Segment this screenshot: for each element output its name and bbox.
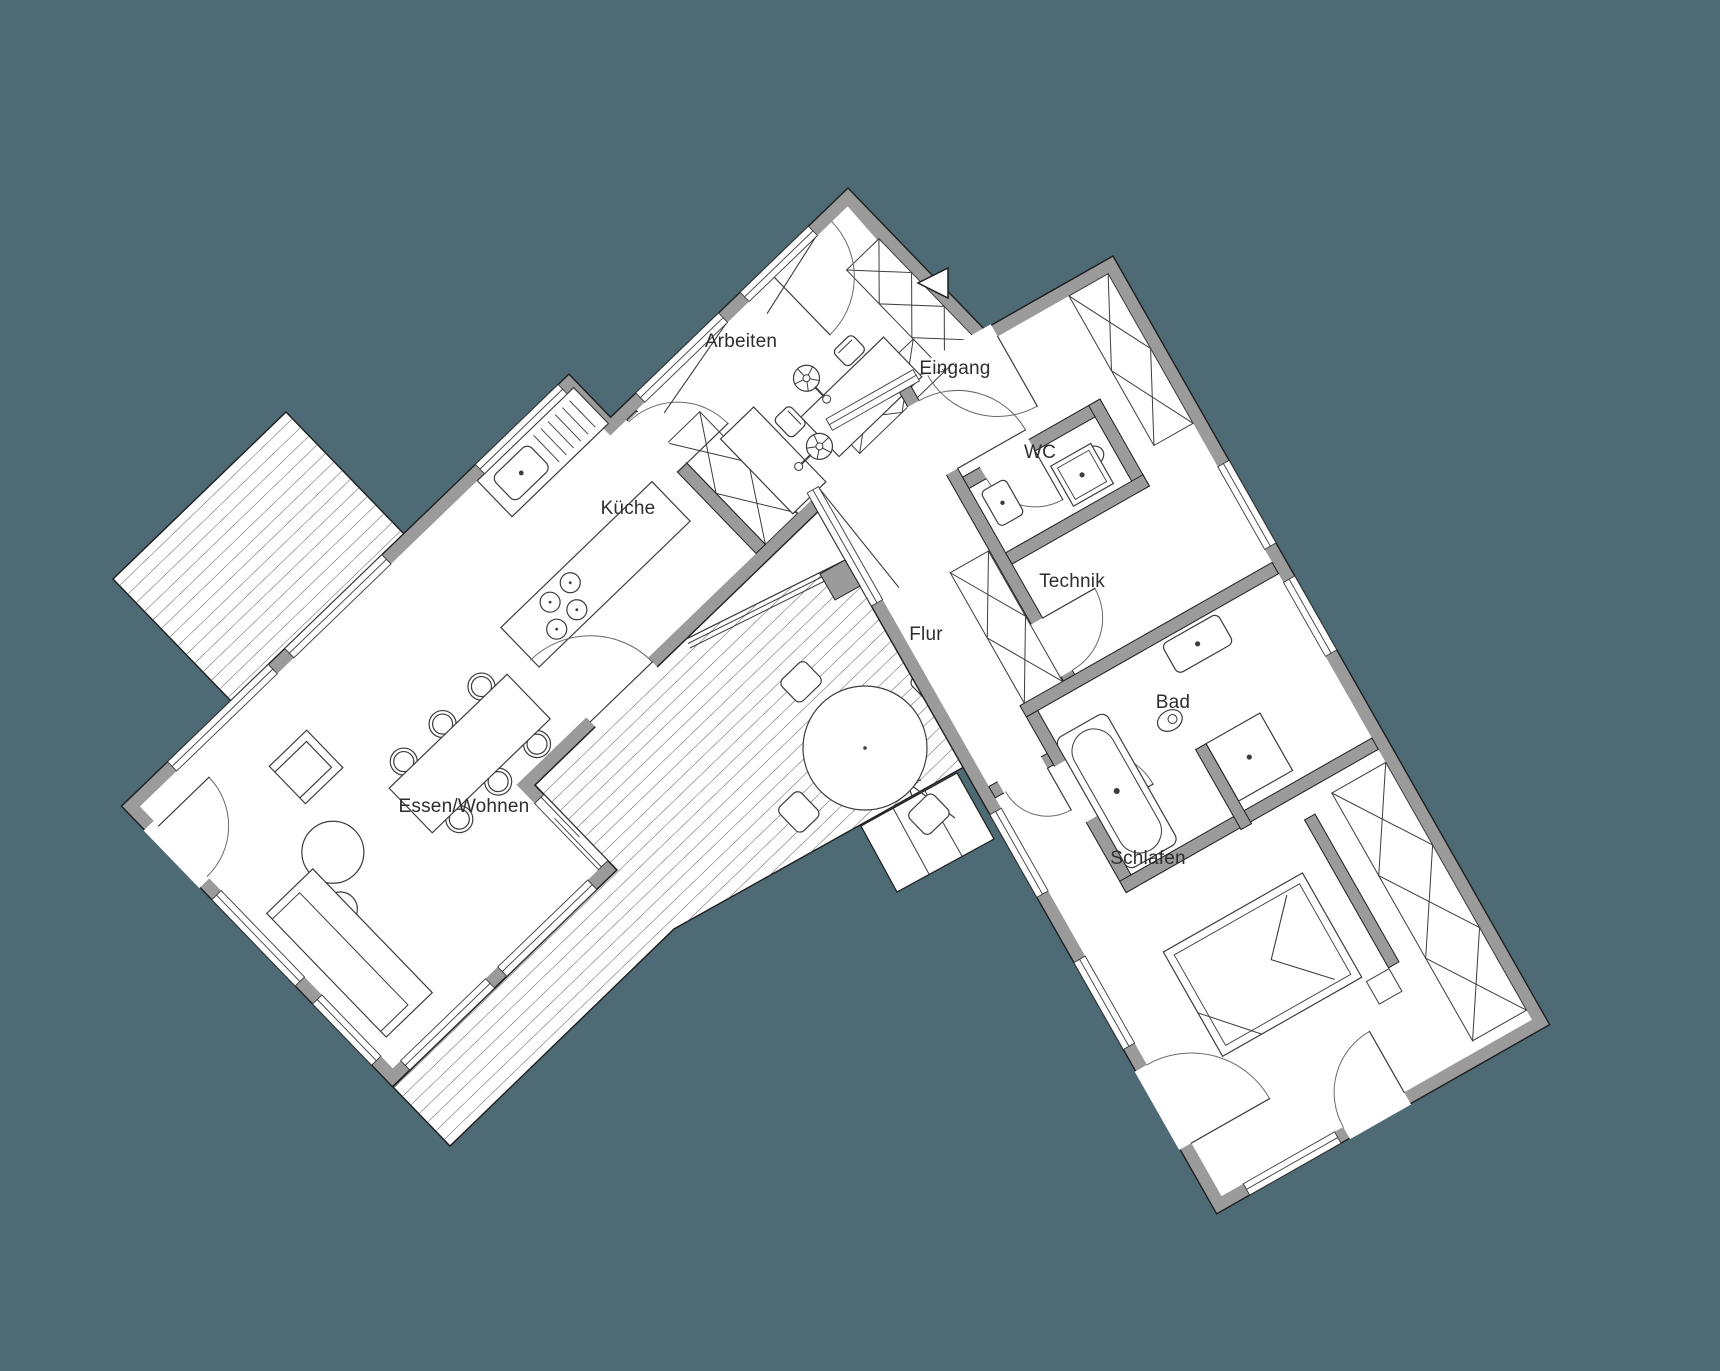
room-label-kueche: Küche: [601, 498, 656, 519]
room-label-technik: Technik: [1039, 571, 1105, 592]
room-label-bad: Bad: [1156, 692, 1190, 713]
room-label-arbeiten: Arbeiten: [705, 331, 777, 352]
room-label-eingang: Eingang: [919, 358, 990, 379]
room-label-wc: WC: [1024, 442, 1056, 463]
floor-plan-canvas: Arbeiten Eingang WC Küche Technik Flur B…: [0, 0, 1720, 1371]
room-label-flur: Flur: [909, 624, 943, 645]
floor-plan-drawing: Arbeiten Eingang WC Küche Technik Flur B…: [0, 0, 1720, 1371]
room-label-schlafen: Schlafen: [1110, 848, 1186, 869]
room-label-essen-wohnen: Essen/Wohnen: [399, 796, 530, 817]
